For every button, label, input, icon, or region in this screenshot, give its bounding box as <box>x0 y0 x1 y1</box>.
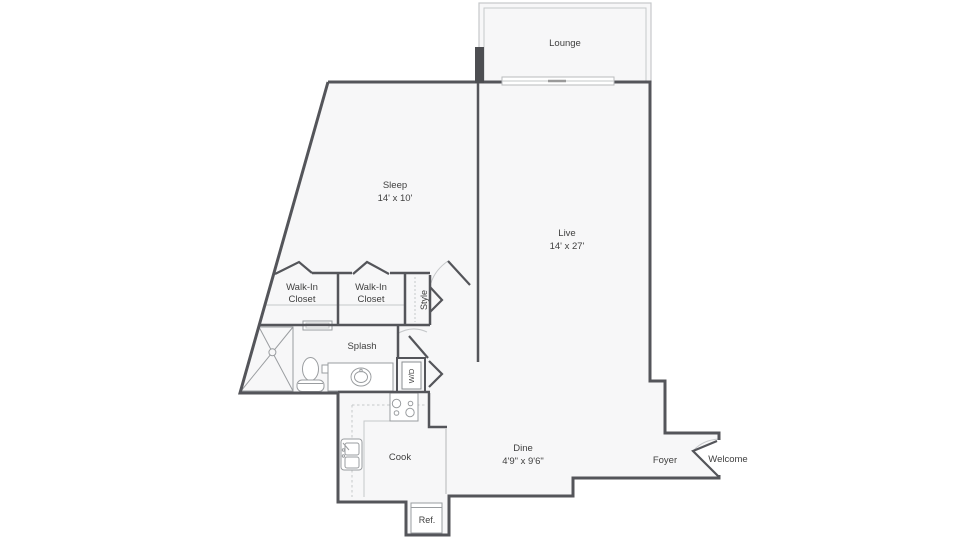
sleep-dims: 14' x 10' <box>378 193 413 204</box>
lounge-label: Lounge <box>549 38 581 49</box>
floor-plan-svg: Lounge Sleep 14' x 10' Live 14' x 27' Wa… <box>0 0 960 540</box>
closet1-label-line1: Walk-In <box>286 282 318 293</box>
dine-label: Dine <box>513 443 533 454</box>
sliding-door <box>502 77 614 85</box>
welcome-label: Welcome <box>708 454 747 465</box>
foyer-label: Foyer <box>653 455 677 466</box>
wall-pier-block <box>475 47 484 83</box>
stove-fixture <box>390 393 418 421</box>
live-label: Live <box>558 228 575 239</box>
ref-label: Ref. <box>419 515 436 525</box>
style-label: Style <box>419 290 429 310</box>
live-dims: 14' x 27' <box>550 241 585 252</box>
closet2-label-line1: Walk-In <box>355 282 387 293</box>
unit-floor <box>240 82 719 535</box>
splash-label: Splash <box>347 341 376 352</box>
dine-dims: 4'9" x 9'6" <box>502 456 544 467</box>
vanity-sink-fixture <box>322 363 393 391</box>
closet2-label-line2: Closet <box>358 294 385 305</box>
sleep-label: Sleep <box>383 180 407 191</box>
floor-plan-page: Lounge Sleep 14' x 10' Live 14' x 27' Wa… <box>0 0 960 540</box>
wd-label: W/D <box>407 368 416 383</box>
kitchen-sink-fixture <box>341 439 362 470</box>
closet1-label-line2: Closet <box>289 294 316 305</box>
cook-label: Cook <box>389 452 411 463</box>
